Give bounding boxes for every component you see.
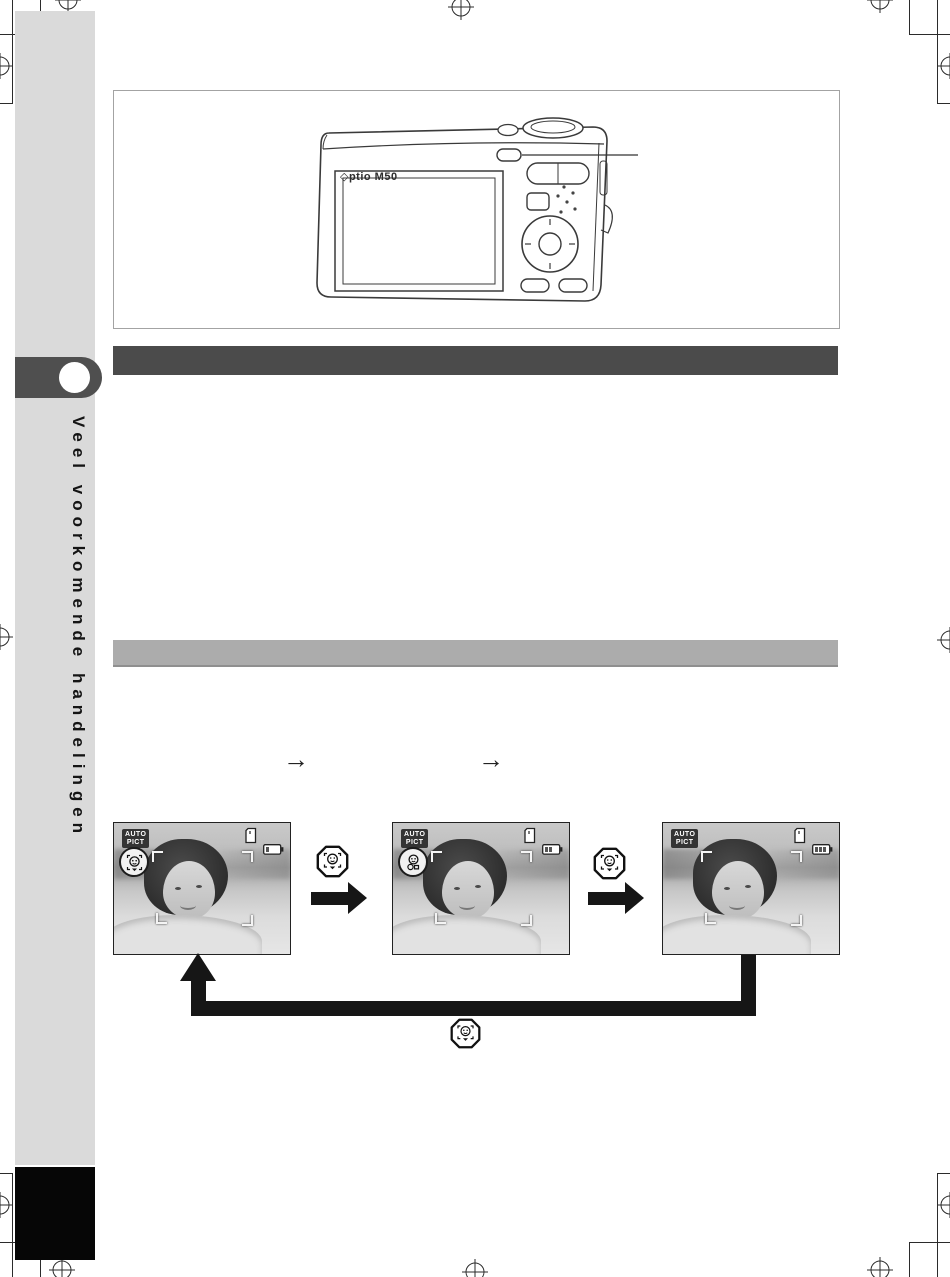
sequence-arrow-icon: → (478, 746, 504, 772)
section-header-bar-light (113, 640, 838, 667)
subject-face (442, 861, 494, 919)
focus-bracket-icon (242, 915, 253, 926)
registration-mark-icon (0, 1192, 13, 1218)
registration-mark-icon (867, 1257, 893, 1277)
menu-button (521, 279, 549, 292)
battery-icon (263, 842, 284, 860)
battery-icon (542, 842, 563, 860)
focus-bracket-icon (701, 851, 712, 862)
memory-card-icon (794, 827, 806, 849)
next-step-arrow-icon (311, 882, 367, 915)
lcd-screen-face-priority: AUTO PICT (113, 822, 291, 955)
registration-mark-icon (448, 0, 474, 20)
auto-pict-badge: AUTO PICT (401, 829, 428, 848)
next-step-arrow-icon (588, 882, 644, 915)
auto-pict-badge: AUTO PICT (122, 829, 149, 848)
section-header-bar-dark (113, 346, 838, 375)
registration-mark-icon (462, 1259, 488, 1277)
focus-bracket-icon (521, 915, 532, 926)
ok-button (539, 233, 561, 255)
crop-mark-corner-bl-inner (0, 1173, 13, 1277)
focus-bracket-icon (791, 915, 802, 926)
camera-back-illustration (301, 113, 651, 313)
face-priority-icon (119, 847, 149, 877)
face-recognition-button-icon (450, 1018, 481, 1049)
smile-capture-icon (398, 847, 428, 877)
chapter-title-vertical: Veel voorkomende handelingen (54, 416, 88, 1126)
focus-bracket-icon (156, 913, 167, 924)
registration-mark-icon (937, 1192, 950, 1218)
registration-mark-icon (937, 627, 950, 653)
chapter-dot-icon (59, 362, 90, 393)
focus-bracket-icon (435, 913, 446, 924)
lcd-screen-face-priority-off: AUTO PICT (662, 822, 840, 955)
registration-mark-icon (49, 1257, 75, 1277)
face-recognition-button-icon (593, 847, 626, 880)
subject-face (712, 861, 764, 919)
loop-arrow-head-icon (180, 953, 216, 981)
crop-mark-corner-tl-inner (0, 0, 13, 104)
chapter-footer-block (15, 1167, 95, 1260)
auto-pict-badge: AUTO PICT (671, 829, 698, 848)
manual-page: Veel voorkomende handelingen (0, 0, 950, 1277)
registration-mark-icon (867, 0, 893, 13)
camera-logo-label: ◇ptio M50 (340, 170, 398, 183)
sequence-arrow-icon: → (283, 746, 309, 772)
registration-mark-icon (0, 53, 13, 79)
playback-button (559, 279, 587, 292)
focus-bracket-icon (431, 851, 442, 862)
focus-bracket-icon (152, 851, 163, 862)
crop-mark-corner-tr-inner (937, 0, 950, 104)
chapter-tab (15, 357, 102, 398)
registration-mark-icon (0, 624, 13, 650)
focus-bracket-icon (242, 851, 253, 862)
registration-mark-icon (937, 53, 950, 79)
face-recognition-button (497, 149, 521, 161)
face-recognition-button-icon (316, 845, 349, 878)
lcd-screen-smile-capture: AUTO PICT (392, 822, 570, 955)
focus-bracket-icon (791, 851, 802, 862)
crop-mark-corner-br-inner (937, 1173, 950, 1277)
battery-icon (812, 842, 833, 860)
green-button (527, 193, 549, 210)
subject-face (163, 861, 215, 919)
camera-illustration-box: ◇ptio M50 (113, 90, 840, 329)
memory-card-icon (524, 827, 536, 849)
memory-card-icon (245, 827, 257, 849)
focus-bracket-icon (521, 851, 532, 862)
loop-arrow-bottom-segment (191, 1001, 756, 1016)
loop-arrow-left-segment (191, 979, 206, 1016)
focus-bracket-icon (705, 913, 716, 924)
